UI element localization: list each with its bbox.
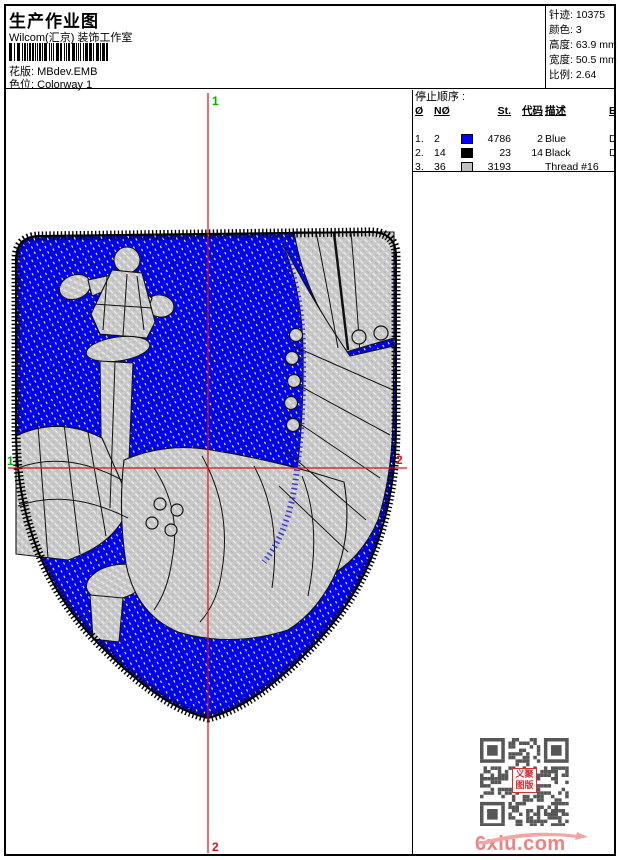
scepter-head bbox=[114, 247, 140, 273]
design-preview-area: 1 1 2 2 bbox=[6, 90, 412, 854]
row-stitch-count: 4786 bbox=[478, 132, 511, 146]
stop-sequence-title: 停止顺序 : bbox=[415, 91, 614, 104]
qr-code-block: 义聚 图版 bbox=[480, 738, 572, 826]
watermark: 6xiu.com bbox=[473, 829, 603, 859]
thread-color-swatch bbox=[461, 162, 473, 172]
marker-left: 1 bbox=[7, 454, 14, 468]
width-row: 宽度: 50.5 mm bbox=[549, 53, 614, 68]
col-header-code: 代码 bbox=[513, 104, 543, 132]
right-panel: 停止顺序 : Ø NØ St. 代码 描述 Brand 元素 1. 2 bbox=[412, 90, 614, 854]
height-row: 高度: 63.9 mm bbox=[549, 38, 614, 53]
header: 生产作业图 Wilcom(汇京) 装饰工作室 花版: MBdev.EMB 色位:… bbox=[6, 6, 614, 89]
col-header-needle: Ø bbox=[415, 104, 432, 132]
col-header-swatch bbox=[461, 104, 476, 132]
row-needle: 36 bbox=[434, 160, 459, 172]
row-number: 3. bbox=[415, 160, 432, 172]
marker-right: 2 bbox=[396, 453, 403, 467]
col-header-stitches: St. bbox=[478, 104, 511, 132]
row-code: 14 bbox=[513, 146, 543, 160]
body: 1 1 2 2 停止顺序 : Ø NØ St. 代码 bbox=[6, 90, 614, 854]
row-description: Blue bbox=[545, 132, 607, 146]
thread-color-swatch bbox=[461, 148, 473, 158]
stop-sequence-block: 停止顺序 : Ø NØ St. 代码 描述 Brand 元素 1. 2 bbox=[413, 90, 614, 172]
row-stitch-count: 3193 bbox=[478, 160, 511, 172]
row-brand bbox=[609, 160, 614, 172]
row-description: Black bbox=[545, 146, 607, 160]
stop-sequence-table: Ø NØ St. 代码 描述 Brand 元素 1. 2 4786 bbox=[415, 104, 614, 172]
marker-top: 1 bbox=[212, 94, 219, 108]
col-header-brand: Brand bbox=[609, 104, 614, 132]
row-brand: Default bbox=[609, 132, 614, 146]
color-count-row: 颜色: 3 bbox=[549, 23, 614, 38]
row-number: 2. bbox=[415, 146, 432, 160]
scale-row: 比例: 2.64 bbox=[549, 68, 614, 83]
col-header-n0: NØ bbox=[434, 104, 459, 132]
row-needle: 14 bbox=[434, 146, 459, 160]
row-code bbox=[513, 160, 543, 172]
stitch-count-row: 针迹: 10375 bbox=[549, 8, 614, 23]
barcode bbox=[9, 43, 111, 61]
fan-foot bbox=[90, 595, 123, 642]
row-description: Thread #16 bbox=[545, 160, 607, 172]
watermark-swoosh-icon bbox=[473, 829, 603, 859]
production-worksheet-page: 生产作业图 Wilcom(汇京) 装饰工作室 花版: MBdev.EMB 色位:… bbox=[0, 0, 620, 860]
col-header-description: 描述 bbox=[545, 104, 607, 132]
design-info-box: 针迹: 10375 颜色: 3 高度: 63.9 mm 宽度: 50.5 mm … bbox=[545, 6, 614, 88]
embroidery-design-svg: 1 1 2 2 bbox=[6, 90, 412, 854]
row-number: 1. bbox=[415, 132, 432, 146]
thread-color-swatch bbox=[461, 134, 473, 144]
red-stamp: 义聚 图版 bbox=[512, 768, 537, 793]
row-stitch-count: 23 bbox=[478, 146, 511, 160]
row-needle: 2 bbox=[434, 132, 459, 146]
worksheet-sheet: 生产作业图 Wilcom(汇京) 装饰工作室 花版: MBdev.EMB 色位:… bbox=[4, 4, 616, 856]
row-brand: Default bbox=[609, 146, 614, 160]
row-code: 2 bbox=[513, 132, 543, 146]
marker-bottom: 2 bbox=[212, 840, 219, 854]
